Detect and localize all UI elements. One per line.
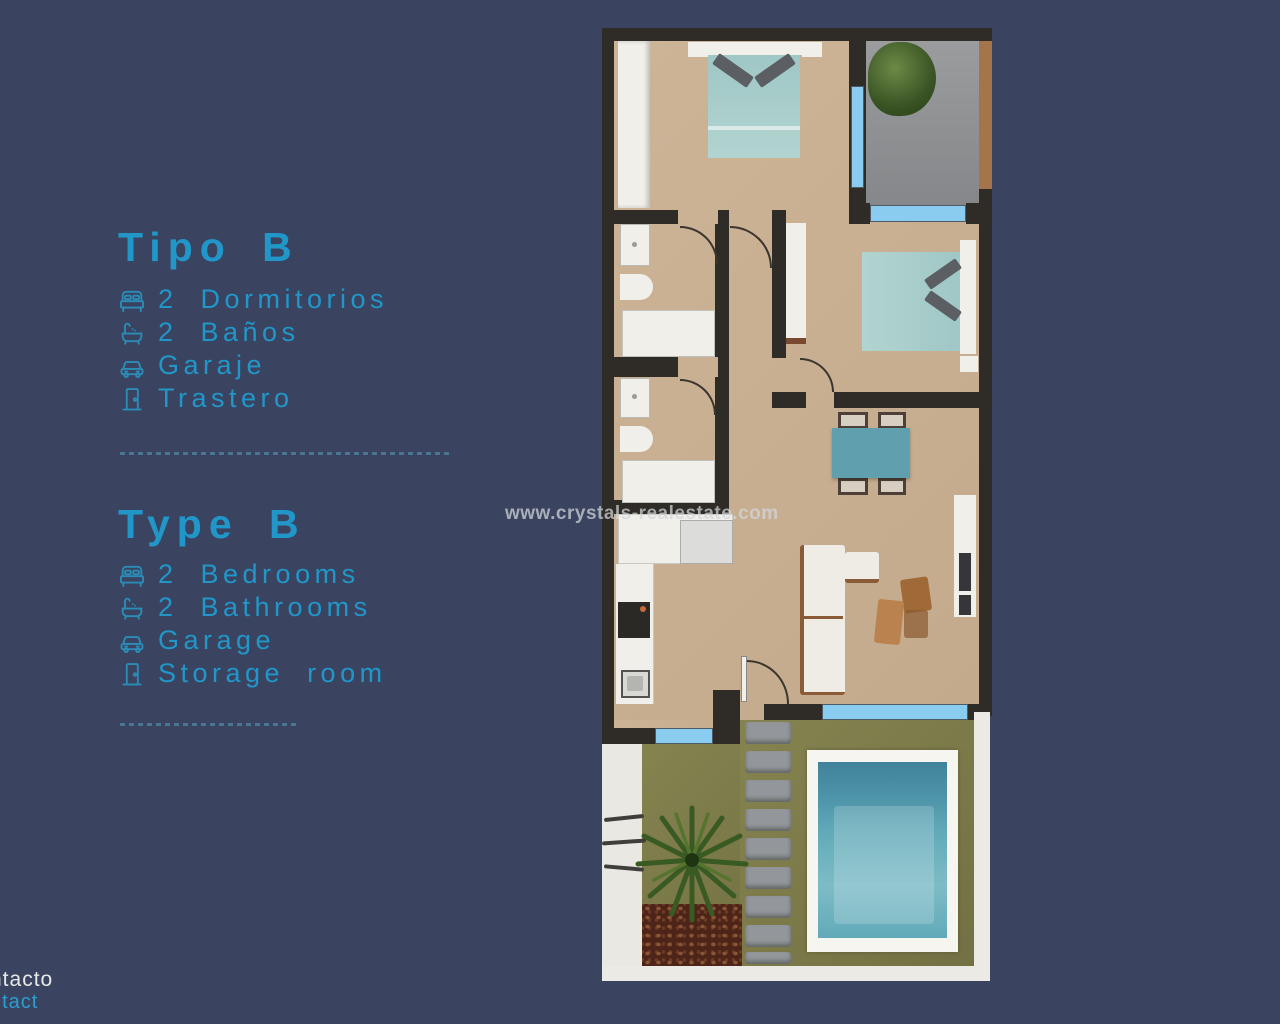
contact-link-en[interactable]: ntact	[0, 991, 38, 1014]
dining-chair	[878, 478, 906, 495]
car-icon	[118, 627, 148, 655]
bed-icon	[118, 561, 148, 589]
feature-row: 2 Bedrooms	[118, 558, 538, 591]
bed1-sheet-fold	[708, 126, 800, 130]
car-icon	[118, 352, 148, 380]
wall-bedroom2-bottom	[772, 392, 806, 408]
garage-door	[979, 41, 992, 189]
feature-label: 2 Baños	[158, 317, 300, 348]
wall-segment	[849, 203, 870, 224]
bed-icon	[118, 286, 148, 314]
bath2-tub	[622, 460, 715, 503]
feature-label: 2 Dormitorios	[158, 284, 388, 315]
stepping-stone	[745, 952, 791, 964]
bathtub-icon	[118, 319, 148, 347]
living-room-window	[822, 704, 968, 720]
feature-list-en: 2 Bedrooms 2 Bathrooms Garage	[118, 558, 538, 690]
dining-table	[832, 428, 910, 478]
feature-row: Storage room	[118, 657, 538, 690]
wall-bath1-right	[715, 224, 729, 357]
feature-label: Garaje	[158, 350, 266, 381]
feature-row: Trastero	[118, 382, 538, 415]
feature-row: Garage	[118, 624, 538, 657]
nightstand	[960, 356, 978, 372]
stepping-stone	[745, 751, 791, 773]
floorplan-watermark: www.crystals-realestate.com	[505, 503, 779, 525]
bath1-toilet	[620, 274, 653, 300]
feature-label: Garage	[158, 625, 275, 656]
wall-bedroom1-bottom	[614, 210, 678, 224]
kitchen-window	[655, 728, 713, 744]
bedroom2-window	[870, 205, 966, 222]
wall-hall-right	[772, 210, 786, 358]
stepping-stone	[745, 722, 791, 744]
side-table-shadow	[904, 610, 928, 638]
nightstand	[802, 42, 822, 57]
section-title-es: Tipo B	[118, 224, 299, 271]
door-icon	[118, 385, 148, 413]
feature-label: 2 Bathrooms	[158, 592, 372, 623]
wall-bottom-left	[602, 728, 655, 744]
stove-knob	[640, 606, 646, 612]
section-title-en: Type B	[118, 501, 306, 548]
wall-bedroom2-bottom	[834, 392, 979, 408]
feature-row: 2 Dormitorios	[118, 283, 538, 316]
feature-row: Garaje	[118, 349, 538, 382]
dotted-separator	[120, 452, 452, 455]
contact-label-es: ntacto	[0, 968, 53, 992]
sofa	[800, 545, 845, 695]
feature-row: 2 Bathrooms	[118, 591, 538, 624]
wall-kitchen-corner	[713, 690, 740, 744]
sink-basin	[627, 676, 643, 691]
dining-chair	[838, 412, 868, 429]
dining-chair	[838, 478, 868, 495]
shower-drain	[632, 242, 637, 247]
flyer-page: Tipo B 2 Dormitorios 2 Baños	[0, 0, 1280, 1024]
palm-plant	[630, 796, 754, 930]
nightstand	[688, 42, 708, 57]
wardrobe-trim	[786, 338, 806, 344]
pool-water-highlight	[834, 806, 934, 924]
garage-side-window	[851, 86, 864, 188]
fridge	[680, 520, 733, 564]
wall-bath2-right	[715, 377, 729, 510]
wall-segment	[718, 357, 729, 377]
dining-chair	[878, 412, 906, 429]
wall-bottom-mid	[764, 704, 822, 720]
bedroom1-wardrobe	[618, 41, 650, 208]
bathtub-icon	[118, 594, 148, 622]
sofa-chaise	[845, 552, 879, 583]
wall-left	[602, 28, 614, 744]
bath2-toilet	[620, 426, 653, 452]
wall-bath-divider	[614, 357, 678, 377]
shower-drain	[632, 394, 637, 399]
feature-label: Trastero	[158, 383, 294, 414]
feature-list-es: 2 Dormitorios 2 Baños Garaje	[118, 283, 538, 415]
tv	[959, 553, 971, 591]
wall-segment	[718, 210, 729, 224]
sofa-divider	[802, 616, 843, 619]
wall-top	[602, 28, 992, 41]
garden-border-right	[974, 712, 990, 981]
bed2-headboard	[960, 240, 976, 354]
bath1-tub	[622, 310, 715, 357]
door-icon	[118, 660, 148, 688]
armchair	[874, 599, 904, 645]
side-table	[900, 576, 932, 614]
bedroom2-wardrobe	[786, 223, 806, 342]
dotted-separator	[120, 723, 300, 726]
feature-label: 2 Bedrooms	[158, 559, 360, 590]
wall-segment	[966, 203, 979, 224]
feature-row: 2 Baños	[118, 316, 538, 349]
garden-border-bottom	[602, 966, 990, 981]
av-equipment	[959, 595, 971, 615]
feature-label: Storage room	[158, 658, 387, 689]
